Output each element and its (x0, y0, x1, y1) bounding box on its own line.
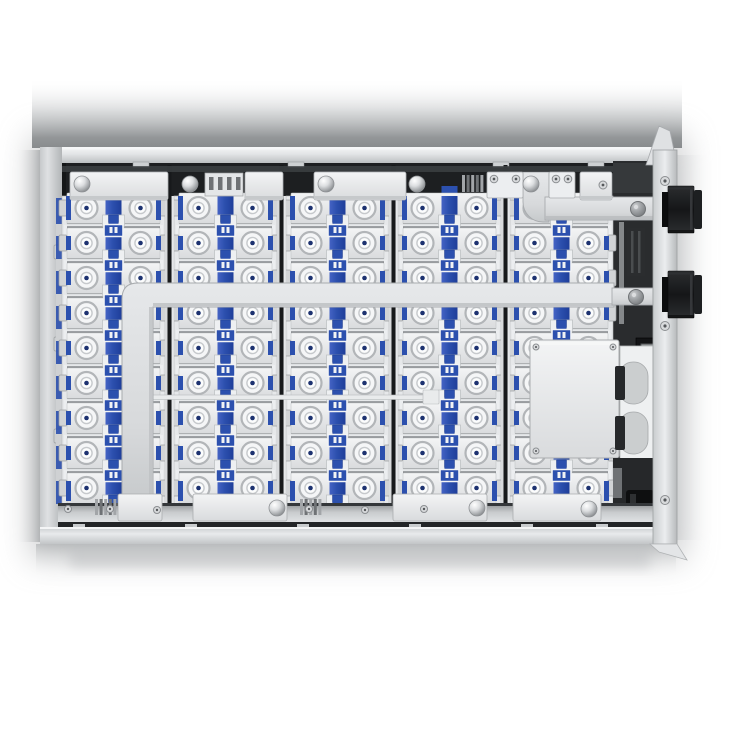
cell-terminal-dot (532, 486, 537, 491)
busbar-rib-cap (64, 365, 67, 376)
edge-blue-tick (156, 341, 161, 355)
busbar-rib-cap (272, 330, 275, 341)
strap-buckle-tick (227, 227, 230, 233)
edge-blue-tick (66, 411, 71, 425)
rivet-highlight (634, 205, 638, 209)
screw-center (364, 509, 366, 511)
busbar-rib-cap (272, 260, 275, 271)
edge-blue-tick (178, 446, 183, 460)
strap-buckle-tick (227, 437, 230, 443)
cell-terminal-dot (308, 381, 313, 386)
edge-blue-tick (380, 481, 385, 501)
busbar-rib-cap (64, 330, 67, 341)
strap-buckle-tick (339, 437, 342, 443)
strap-buckle-tick (451, 367, 454, 373)
strap-buckle-tick (222, 332, 225, 338)
busbar-rib-cap (512, 400, 515, 411)
busbar-rib-cap (64, 400, 67, 411)
edge-blue-tick (268, 341, 273, 355)
top-wall-highlight (40, 147, 656, 150)
busbar-rib-cap (176, 365, 179, 376)
edge-tab (59, 480, 67, 496)
strap-buckle (552, 470, 571, 482)
top-rail-plate (245, 172, 283, 200)
busbar-rib-cap (608, 470, 611, 481)
strap-buckle-tick (446, 262, 449, 268)
bottom-bay-bracket (613, 468, 622, 498)
cell-terminal-dot (84, 381, 89, 386)
strap-buckle-tick (110, 332, 113, 338)
clamp-slot (218, 177, 223, 190)
strap-buckle (552, 225, 571, 237)
screw-center (663, 324, 666, 327)
strap-buckle-tick (334, 262, 337, 268)
top-rail-rib (462, 175, 465, 192)
right-bay-top-shelf (613, 163, 653, 193)
keyhole-dark-bar (615, 366, 625, 400)
strap-buckle-tick (115, 472, 118, 478)
edge-tab (59, 375, 67, 391)
strap-buckle-tick (110, 297, 113, 303)
strap-buckle (104, 225, 123, 237)
edge-blue-tick (514, 446, 519, 460)
bms-junction-box (530, 340, 619, 458)
busbar-rivet (631, 202, 646, 217)
hv-connector-collar (662, 277, 668, 312)
edge-blue-tick (66, 376, 71, 390)
edge-blue-tick (290, 306, 295, 320)
strap-buckle (216, 470, 235, 482)
busbar-rib-cap (496, 400, 499, 411)
busbar-rib-cap (176, 225, 179, 236)
edge-blue-tick (178, 411, 183, 425)
strap-buckle (216, 365, 235, 377)
strap-buckle (104, 330, 123, 342)
cell-terminal-dot (362, 311, 367, 316)
cell-terminal-dot (532, 311, 537, 316)
cell-terminal-dot (420, 241, 425, 246)
cell-terminal-dot (250, 451, 255, 456)
strap-buckle-tick (227, 402, 230, 408)
cell-terminal-dot (586, 486, 591, 491)
edge-blue-tick (178, 376, 183, 390)
cell-terminal-dot (138, 241, 143, 246)
dome-bolt (269, 500, 285, 516)
dome-bolt (318, 176, 334, 192)
busbar-rib-cap (400, 225, 403, 236)
hv-connector-shade (668, 230, 694, 233)
cell-terminal-dot (362, 486, 367, 491)
hv-connector-cap (694, 190, 702, 229)
right-bay-sliver (619, 222, 624, 324)
busbar-rib-cap (288, 435, 291, 446)
bms-box-highlight (532, 342, 617, 345)
strap-buckle-tick (451, 472, 454, 478)
strap-buckle-tick (227, 262, 230, 268)
cell-terminal-dot (250, 276, 255, 281)
busbar-rib-cap (496, 435, 499, 446)
strap-buckle-tick (334, 332, 337, 338)
top-rail-bracket (549, 172, 575, 198)
edge-blue-tick (492, 236, 497, 250)
strap-buckle-tick (451, 227, 454, 233)
bottom-rail-rib (100, 499, 103, 515)
hv-connector-ridge (690, 189, 693, 230)
busbar-rib-cap (288, 260, 291, 271)
strap-buckle-tick (339, 367, 342, 373)
cell-terminal-dot (196, 206, 201, 211)
edge-blue-tick (156, 411, 161, 425)
strap-buckle-tick (334, 227, 337, 233)
edge-blue-tick (178, 481, 183, 501)
cell-terminal-dot (420, 311, 425, 316)
strap-buckle-tick (339, 472, 342, 478)
edge-tab (59, 235, 67, 251)
keyhole-dark-bar (615, 416, 625, 450)
screw-center (156, 509, 158, 511)
busbar-rib-cap (288, 365, 291, 376)
hv-connector-topline (668, 188, 694, 190)
cell-terminal-dot (250, 486, 255, 491)
cell-terminal-dot (362, 241, 367, 246)
right-bay-block-ridge (631, 231, 634, 273)
hv-connector-shade (668, 315, 694, 318)
screw-center (555, 178, 558, 181)
strap-buckle-tick (110, 472, 113, 478)
strap-buckle (328, 435, 347, 447)
edge-tab (59, 305, 67, 321)
strap-buckle-tick (339, 402, 342, 408)
busbar-rib-cap (272, 225, 275, 236)
cell-terminal-dot (138, 276, 143, 281)
strap-buckle-tick (451, 262, 454, 268)
bottom-rail-rib (300, 499, 303, 515)
strap-buckle (104, 365, 123, 377)
cell-terminal-dot (308, 311, 313, 316)
strap-buckle-tick (339, 332, 342, 338)
edge-blue-tick (380, 411, 385, 425)
edge-blue-tick (492, 341, 497, 355)
strap-buckle-tick (110, 402, 113, 408)
strap-buckle-tick (222, 437, 225, 443)
edge-blue-tick (66, 271, 71, 285)
edge-blue-tick (178, 236, 183, 250)
edge-blue-tick (290, 196, 295, 220)
edge-blue-tick (514, 236, 519, 250)
cell-terminal-dot (474, 451, 479, 456)
edge-tab (59, 410, 67, 426)
busbar-rib-cap (176, 400, 179, 411)
clamp-slot (227, 177, 232, 190)
cell-terminal-dot (196, 486, 201, 491)
sensor-harness (153, 395, 425, 400)
cell-terminal-dot (420, 451, 425, 456)
edge-blue-tick (290, 411, 295, 425)
busbar-rib-cap (400, 470, 403, 481)
strap-buckle-tick (446, 472, 449, 478)
hv-connector-cap (694, 275, 702, 314)
cell-retention-strap (442, 196, 458, 500)
edge-blue-tick (492, 196, 497, 220)
cell-terminal-dot (196, 346, 201, 351)
edge-tab (59, 270, 67, 286)
clamp-slot (236, 177, 241, 190)
strap-buckle-tick (115, 297, 118, 303)
busbar-rib-cap (160, 330, 163, 341)
busbar-rib-cap (272, 365, 275, 376)
edge-blue-tick (402, 446, 407, 460)
cell-terminal-dot (474, 311, 479, 316)
edge-blue-tick (380, 376, 385, 390)
busbar-rib-cap (288, 330, 291, 341)
cell-terminal-dot (250, 206, 255, 211)
screw-center (663, 179, 666, 182)
hv-connector-ridge (690, 274, 693, 315)
edge-blue-tick (402, 341, 407, 355)
cell-terminal-dot (362, 206, 367, 211)
screw-center (535, 450, 537, 452)
strap-buckle (216, 225, 235, 237)
column-separator-gap (504, 165, 508, 517)
edge-blue-tick (178, 341, 183, 355)
rivet-highlight (632, 293, 636, 297)
busbar-rib-cap (176, 470, 179, 481)
edge-tab (59, 200, 67, 216)
edge-blue-tick (380, 306, 385, 320)
strap-buckle (328, 330, 347, 342)
cell-terminal-dot (586, 241, 591, 246)
edge-blue-tick (402, 376, 407, 390)
bottom-rail-rib (318, 499, 321, 515)
strap-buckle-tick (110, 437, 113, 443)
busbar-rib-cap (64, 260, 67, 271)
cell-terminal-dot (474, 416, 479, 421)
busbar-rib-cap (160, 260, 163, 271)
screw-center (663, 498, 666, 501)
cell-terminal-dot (308, 416, 313, 421)
strap-buckle-tick (110, 227, 113, 233)
busbar-rib-cap (512, 365, 515, 376)
busbar-rivet (629, 290, 644, 305)
edge-blue-tick (380, 236, 385, 250)
strap-buckle-tick (563, 472, 566, 478)
cell-terminal-dot (84, 346, 89, 351)
column-separator-edge (508, 196, 510, 506)
edge-blue-tick (268, 306, 273, 320)
strap-buckle (104, 435, 123, 447)
strap-buckle (216, 330, 235, 342)
right-bay-block-ridge (638, 231, 641, 273)
dome-bolt (182, 176, 198, 192)
edge-blue-tick (66, 446, 71, 460)
screw-center (567, 178, 570, 181)
strap-buckle (440, 435, 459, 447)
cell-terminal-dot (474, 381, 479, 386)
column-separator-gap (280, 165, 284, 517)
busbar-rib-cap (272, 435, 275, 446)
edge-blue-tick (380, 341, 385, 355)
top-rail-rib (480, 175, 483, 192)
dome-bolt (469, 500, 485, 516)
cell-terminal-dot (84, 241, 89, 246)
edge-blue-tick (268, 446, 273, 460)
edge-blue-tick (268, 411, 273, 425)
busbar-rib-cap (176, 435, 179, 446)
strap-buckle (328, 470, 347, 482)
cell-terminal-dot (196, 451, 201, 456)
strap-buckle (440, 260, 459, 272)
strap-buckle-tick (558, 227, 561, 233)
edge-blue-tick (514, 196, 519, 220)
column-separator-gap (168, 165, 172, 517)
screw-center (535, 346, 537, 348)
cell-terminal-dot (420, 206, 425, 211)
top-shadow (32, 78, 682, 148)
strap-buckle (216, 400, 235, 412)
busbar-rib-cap (160, 435, 163, 446)
edge-blue-tick (492, 446, 497, 460)
cell-terminal-dot (362, 381, 367, 386)
screw-center (67, 508, 69, 510)
busbar-rib-cap (272, 470, 275, 481)
strap-buckle-tick (222, 227, 225, 233)
cell-terminal-dot (474, 206, 479, 211)
busbar-rib-cap (400, 400, 403, 411)
cell-terminal-dot (250, 416, 255, 421)
edge-blue-tick (514, 306, 519, 320)
cell-terminal-dot (420, 346, 425, 351)
strap-buckle-tick (110, 262, 113, 268)
cell-terminal-dot (196, 381, 201, 386)
busbar-rib-cap (496, 470, 499, 481)
busbar-rib-cap (512, 330, 515, 341)
edge-tab (59, 340, 67, 356)
bottom-rail-rib (314, 499, 317, 515)
strap-buckle (104, 295, 123, 307)
edge-blue-tick (268, 376, 273, 390)
busbar-rib-cap (160, 470, 163, 481)
edge-blue-tick (290, 481, 295, 501)
busbar-rib-cap (384, 365, 387, 376)
hv-connector-topline (668, 273, 694, 275)
strap-buckle (104, 400, 123, 412)
strap-buckle (440, 330, 459, 342)
busbar-rib-cap (288, 400, 291, 411)
cell-terminal-dot (586, 276, 591, 281)
busbar-rib-cap (384, 225, 387, 236)
strap-buckle-tick (222, 402, 225, 408)
cell-terminal-dot (420, 416, 425, 421)
edge-blue-tick (380, 446, 385, 460)
strap-buckle-tick (563, 227, 566, 233)
hv-connector-collar (662, 192, 668, 227)
top-rail-rib (476, 175, 479, 192)
cell-terminal-dot (308, 346, 313, 351)
cell-terminal-dot (250, 241, 255, 246)
strap-buckle-tick (558, 262, 561, 268)
strap-buckle-tick (446, 332, 449, 338)
strap-buckle-tick (446, 402, 449, 408)
cell-terminal-dot (308, 486, 313, 491)
strap-buckle-tick (222, 262, 225, 268)
busbar-rib-cap (160, 225, 163, 236)
strap-buckle-tick (115, 262, 118, 268)
busbar-rib-cap (400, 435, 403, 446)
bottom-wall-lip (40, 527, 656, 544)
bottom-rail-rib (95, 499, 98, 515)
dome-bolt (409, 176, 425, 192)
cell-terminal-dot (474, 241, 479, 246)
cell-terminal-dot (308, 241, 313, 246)
cell-terminal-dot (84, 311, 89, 316)
cell-terminal-dot (586, 311, 591, 316)
busbar-rib-cap (160, 400, 163, 411)
edge-blue-tick (290, 446, 295, 460)
top-rail-plate-edge (245, 196, 283, 199)
busbar-rib-cap (608, 330, 611, 341)
strap-buckle-tick (446, 367, 449, 373)
strap-buckle (328, 260, 347, 272)
busbar-rib-cap (176, 260, 179, 271)
strap-buckle-tick (115, 227, 118, 233)
edge-blue-tick (514, 376, 519, 390)
edge-tab (608, 235, 616, 251)
strap-buckle (216, 260, 235, 272)
edge-blue-tick (156, 236, 161, 250)
screw-center (308, 508, 310, 510)
strap-buckle-tick (451, 437, 454, 443)
strap-buckle (104, 470, 123, 482)
cell-retention-strap (106, 196, 122, 500)
strap-buckle-tick (115, 402, 118, 408)
cell-terminal-dot (196, 241, 201, 246)
strap-buckle-tick (115, 332, 118, 338)
strap-buckle (440, 470, 459, 482)
edge-blue-tick (492, 411, 497, 425)
battery-pack-top-view-illustration (0, 0, 730, 730)
busbar-rib-cap (176, 330, 179, 341)
top-rail-rib (471, 175, 474, 192)
cell-terminal-dot (308, 276, 313, 281)
top-rail-rib (467, 175, 470, 192)
cell-terminal-dot (84, 206, 89, 211)
busbar-rib-cap (64, 225, 67, 236)
cell-terminal-dot (196, 276, 201, 281)
cell-terminal-dot (474, 486, 479, 491)
column-separator-gap (392, 165, 396, 517)
edge-blue-tick (156, 376, 161, 390)
cell-terminal-dot (196, 416, 201, 421)
cell-retention-strap (218, 196, 234, 500)
edge-blue-tick (492, 376, 497, 390)
cell-terminal-dot (250, 381, 255, 386)
busbar-rib-cap (496, 330, 499, 341)
strap-buckle-tick (227, 472, 230, 478)
screw-center (612, 346, 614, 348)
edge-tab (59, 445, 67, 461)
strap-buckle-tick (563, 262, 566, 268)
strap-buckle (104, 260, 123, 272)
strap-buckle-tick (558, 332, 561, 338)
busbar-rib-cap (64, 435, 67, 446)
top-rail-plate-edge (580, 196, 612, 199)
strap-buckle-tick (110, 367, 113, 373)
busbar-rib-cap (384, 400, 387, 411)
busbar-rib-cap (608, 260, 611, 271)
edge-blue-tick (402, 411, 407, 425)
cell-terminal-dot (84, 486, 89, 491)
edge-blue-tick (514, 411, 519, 425)
